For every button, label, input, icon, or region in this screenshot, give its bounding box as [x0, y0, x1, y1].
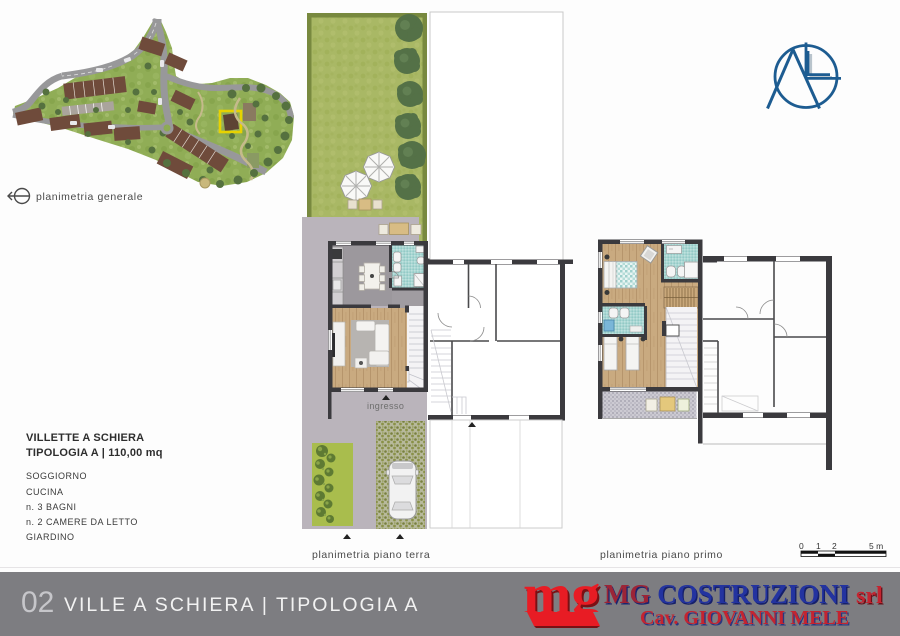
svg-text:planimetria piano primo: planimetria piano primo: [600, 549, 723, 561]
svg-text:5 m: 5 m: [869, 541, 883, 551]
svg-text:CUCINA: CUCINA: [26, 487, 64, 497]
svg-text:1: 1: [816, 541, 821, 551]
svg-text:n. 3 BAGNI: n. 3 BAGNI: [26, 502, 77, 512]
svg-text:Cav. GIOVANNI MELE: Cav. GIOVANNI MELE: [640, 607, 849, 629]
svg-text:2: 2: [832, 541, 837, 551]
svg-text:MG COSTRUZIONI srl: MG COSTRUZIONI srl: [604, 579, 883, 609]
svg-text:02: 02: [21, 586, 54, 619]
svg-text:GIARDINO: GIARDINO: [26, 532, 75, 542]
svg-text:0: 0: [799, 541, 804, 551]
svg-text:VILLETTE A SCHIERA: VILLETTE A SCHIERA: [26, 432, 144, 444]
svg-text:TIPOLOGIA A | 110,00 mq: TIPOLOGIA A | 110,00 mq: [26, 447, 163, 459]
svg-text:ingresso: ingresso: [367, 401, 404, 411]
svg-text:VILLE A SCHIERA | TIPOLOGIA A: VILLE A SCHIERA | TIPOLOGIA A: [64, 594, 419, 616]
svg-text:n. 2 CAMERE DA LETTO: n. 2 CAMERE DA LETTO: [26, 517, 138, 527]
svg-text:planimetria generale: planimetria generale: [36, 191, 143, 203]
svg-text:SOGGIORNO: SOGGIORNO: [26, 471, 87, 481]
svg-text:planimetria piano terra: planimetria piano terra: [312, 549, 430, 561]
